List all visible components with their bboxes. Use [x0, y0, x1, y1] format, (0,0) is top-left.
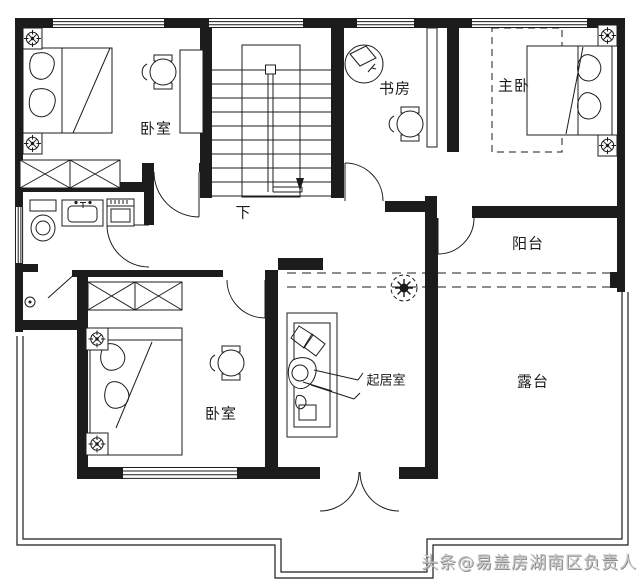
- window-top-3: [357, 18, 414, 28]
- ceiling-lamp-icon: [391, 275, 417, 301]
- round-table-icon: [389, 107, 423, 141]
- window-top-1: [53, 18, 164, 28]
- door-terrace-french: [320, 472, 399, 511]
- wardrobe-icon: [88, 282, 182, 310]
- bed-icon: [23, 48, 112, 133]
- door-bedroom-top-left: [154, 172, 199, 217]
- staircase: [212, 45, 331, 197]
- wardrobe-icon: [20, 160, 120, 188]
- room-label-living-room: 起居室: [366, 370, 405, 389]
- window-bathroom-left: [15, 207, 23, 263]
- round-table-icon: [142, 55, 176, 89]
- round-table-icon: [210, 346, 244, 380]
- room-label-terrace: 露台: [517, 371, 549, 392]
- bathroom-fixtures: [30, 199, 134, 241]
- room-label-bedroom-top-left: 卧室: [140, 118, 172, 139]
- bedroom-top-left-furniture: [20, 28, 203, 188]
- desk-icon: [180, 50, 203, 133]
- room-label-bedroom-bottom: 卧室: [205, 403, 237, 424]
- door-hallway: [25, 272, 77, 307]
- door-bathroom: [107, 225, 149, 267]
- stairs-down-label: 下: [235, 202, 250, 223]
- balcony-edge: [287, 273, 612, 287]
- window-top-4: [472, 18, 587, 28]
- room-label-balcony: 阳台: [512, 233, 544, 254]
- watermark: 头条@易盖房湖南区负责人: [421, 548, 637, 573]
- washing-machine-icon: [107, 199, 134, 226]
- window-top-2: [209, 18, 303, 28]
- office-chair-icon: [345, 45, 383, 83]
- window-bedroom-bottom: [123, 467, 237, 479]
- door-study: [345, 163, 383, 201]
- bookshelf-icon: [427, 28, 437, 147]
- door-bedroom-bottom: [227, 280, 265, 318]
- door-balcony: [438, 218, 474, 254]
- room-label-study: 书房: [379, 78, 411, 99]
- bed-icon: [527, 46, 612, 135]
- room-label-master-bedroom: 主卧: [498, 75, 530, 96]
- floor-plan-drawing: [0, 0, 640, 587]
- toilet-icon: [30, 200, 56, 241]
- sink-icon: [62, 200, 103, 226]
- floor-plan: 卧室 书房 主卧 阳台 卧室 起居室 露台 下 头条@易盖房湖南区负责人: [0, 0, 640, 587]
- bedroom-bottom-furniture: [86, 282, 244, 455]
- living-room-furniture: [287, 275, 417, 437]
